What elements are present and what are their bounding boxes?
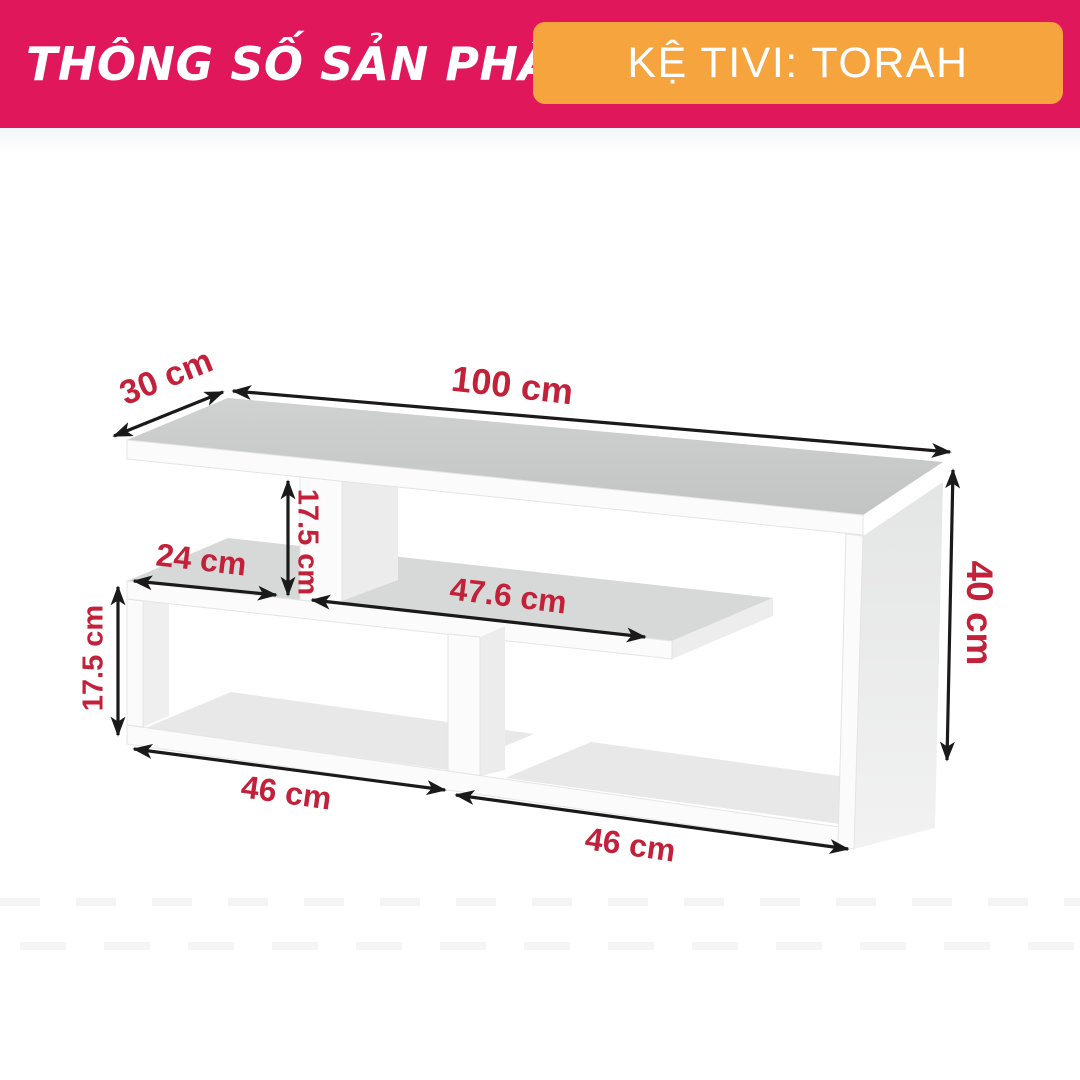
left-compartment-label: 46 cm: [239, 768, 334, 816]
top-gap-label: 17.5 cm: [291, 489, 323, 595]
product-spec-page: THÔNG SỐ SẢN PHẨM KỆ TIVI: TORAH: [0, 0, 1080, 1080]
tv-stand-diagram: 30 cm 100 cm 17.5 cm 24 cm 47.6 cm 40 cm…: [0, 0, 1080, 1080]
right-compartment-label: 46 cm: [583, 820, 678, 868]
height-arrow: [947, 470, 953, 760]
left-panel-inner-face: [143, 590, 169, 727]
bottom-divider-front: [448, 634, 480, 776]
depth-label: 30 cm: [114, 341, 218, 412]
left-panel-front: [127, 599, 143, 727]
bottom-divider-side: [480, 626, 505, 776]
left-box-height-label: 17.5 cm: [78, 605, 110, 711]
height-label: 40 cm: [959, 561, 1000, 666]
width-label: 100 cm: [449, 358, 575, 413]
right-panel-side: [854, 482, 943, 849]
